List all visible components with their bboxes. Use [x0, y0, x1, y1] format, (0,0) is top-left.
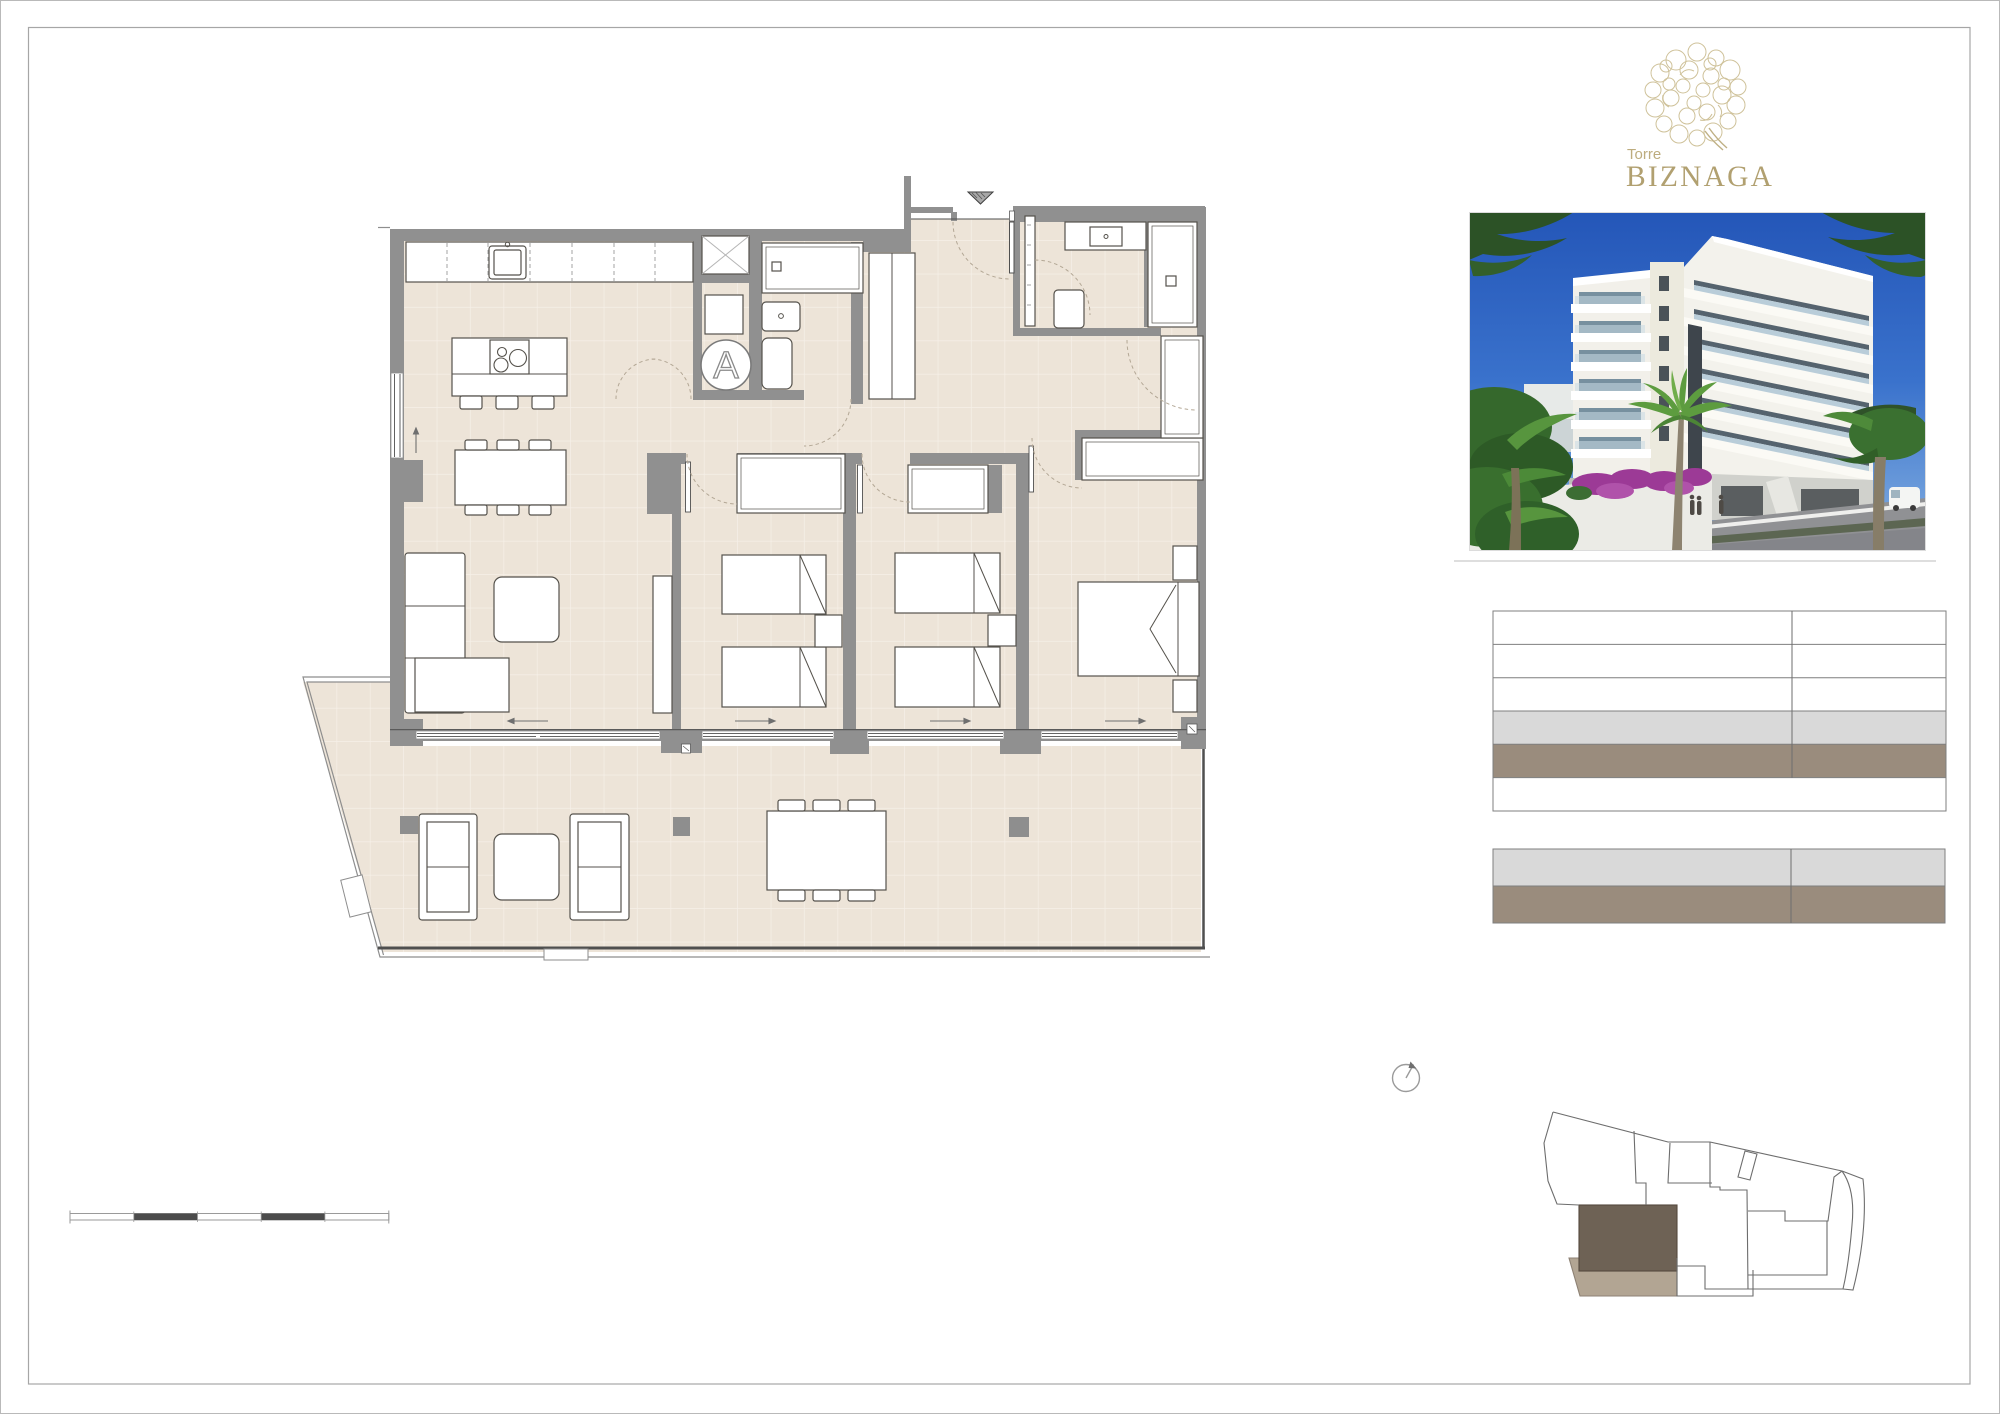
svg-text:BIZNAGA: BIZNAGA — [1626, 161, 1774, 193]
svg-text:A: A — [713, 345, 739, 387]
